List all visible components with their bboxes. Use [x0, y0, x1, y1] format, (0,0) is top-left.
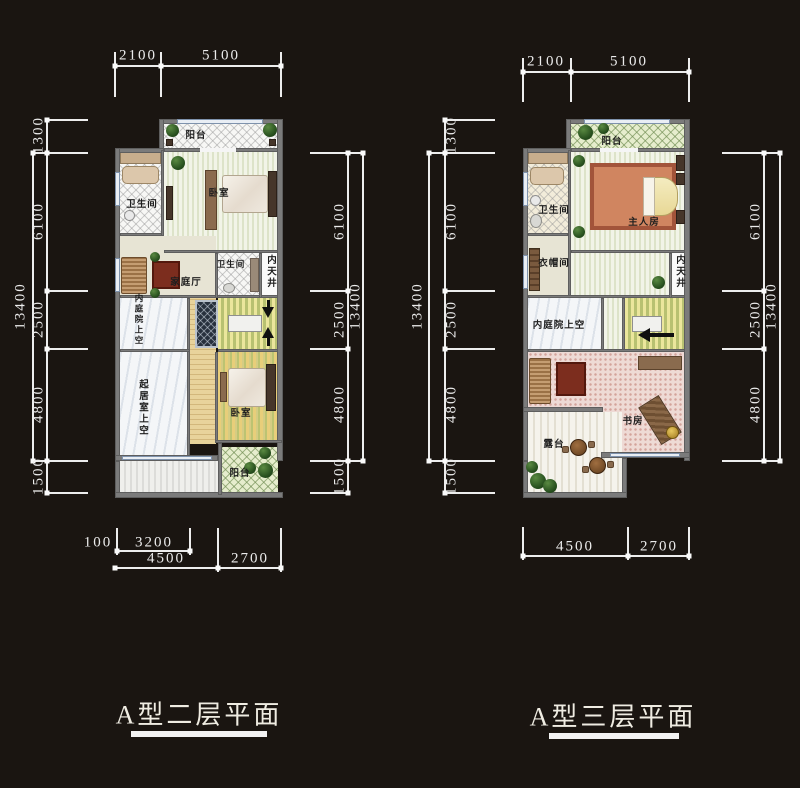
door-opening [600, 148, 638, 152]
plant-icon [652, 276, 665, 289]
stair-arrow-down-icon [262, 307, 274, 318]
dim-ext-line [688, 58, 690, 102]
dim-ext-line [46, 348, 88, 350]
room-label-courtyard-void: 内庭院上空 [533, 317, 586, 331]
dim-tick [427, 459, 432, 464]
dim-label: 2100 [527, 54, 565, 71]
dim-tick [361, 459, 366, 464]
window [177, 119, 263, 124]
bathtub [122, 166, 159, 184]
dim-ext-line [570, 58, 572, 102]
vanity [250, 258, 259, 292]
room-label-balcony-bottom: 阳台 [229, 465, 250, 479]
door-opening [200, 148, 236, 152]
dim-label: 4800 [748, 385, 765, 423]
dim-ext-line [310, 348, 349, 350]
bed [228, 368, 266, 407]
wall [215, 352, 218, 443]
wall [218, 349, 278, 352]
plant-icon [171, 156, 185, 170]
sofa [529, 358, 551, 404]
window [584, 119, 670, 124]
plant-icon [578, 125, 593, 140]
plant-icon [258, 463, 273, 478]
patio-chair [582, 466, 589, 473]
dim-tick [115, 549, 120, 554]
room-label-family-hall: 家庭厅 [170, 274, 202, 288]
wall [115, 492, 283, 498]
dim-tick [521, 554, 526, 559]
dim-label: 2500 [444, 300, 461, 338]
dim-label: 2500 [31, 300, 48, 338]
dim-tick [113, 566, 118, 571]
wall [259, 253, 262, 298]
room-label-cloakroom: 衣帽间 [538, 255, 570, 269]
dim-label: 5100 [202, 48, 240, 65]
room-label-study: 书房 [622, 413, 643, 427]
dim-label: 2500 [332, 300, 349, 338]
dim-label: 1500 [31, 457, 48, 495]
patio-table [589, 457, 606, 474]
toilet [223, 283, 235, 293]
wall [528, 295, 685, 298]
room-label-balcony-top: 阳台 [601, 133, 622, 147]
tv-cabinet [166, 186, 173, 220]
planter-box [269, 139, 276, 146]
dim-label: 6100 [444, 202, 461, 240]
planter-box [166, 139, 173, 146]
dim-label: 3200 [135, 535, 173, 552]
dim-label: 13400 [13, 282, 30, 330]
plant-icon [150, 288, 160, 298]
dim-tick [346, 151, 351, 156]
room-label-bedroom2: 卧室 [230, 405, 251, 419]
window [122, 456, 212, 460]
room-label-courtyard-void: 内庭院上空 [133, 294, 145, 347]
window [610, 453, 680, 457]
corridor [604, 298, 622, 350]
wall [218, 443, 222, 495]
window [115, 258, 120, 292]
dim-ext-line [444, 290, 495, 292]
bench [220, 372, 227, 402]
dim-tick [45, 347, 50, 352]
dim-tick [626, 554, 631, 559]
room-label-bath: 卫生间 [538, 202, 570, 216]
plant-icon [526, 461, 538, 473]
wall [120, 349, 190, 352]
dim-ext-line [114, 52, 116, 97]
room-courtyard-void [120, 298, 188, 350]
dim-tick [569, 70, 574, 75]
room-label-lightwell: 内天井 [672, 255, 686, 290]
dim-tick [778, 459, 783, 464]
corridor [571, 253, 669, 296]
dim-tick [113, 64, 118, 69]
patio-chair [588, 441, 595, 448]
plant-icon [573, 226, 585, 238]
dim-tick [188, 549, 193, 554]
room-living-void [120, 352, 188, 456]
dim-label: 4500 [147, 551, 185, 568]
dim-tick [216, 566, 221, 571]
room-label-bath1: 卫生间 [126, 196, 158, 210]
nightstand [676, 173, 685, 185]
shelf [638, 356, 682, 370]
window [523, 172, 528, 206]
dim-label: 2100 [119, 48, 157, 65]
dim-tick [279, 64, 284, 69]
dim-label: 13400 [410, 282, 427, 330]
plant-icon [573, 155, 585, 167]
dim-tick [279, 566, 284, 571]
wall [523, 407, 603, 412]
wall [277, 119, 283, 461]
dim-ext-line [46, 492, 88, 494]
wall [571, 250, 685, 253]
dim-label: 2700 [640, 539, 678, 556]
wall [120, 233, 164, 236]
dim-ext-line [46, 290, 88, 292]
dim-ext-line [722, 290, 765, 292]
dim-tick [687, 70, 692, 75]
dim-label: 2500 [748, 300, 765, 338]
window [115, 172, 120, 206]
caption-plan2: A型三层平面 [530, 697, 697, 734]
dim-ext-line [722, 152, 781, 154]
wall [187, 298, 190, 458]
bed-pillows [643, 177, 655, 216]
room-label-lightwell: 内天井 [263, 255, 277, 290]
dim-label: 1300 [31, 116, 48, 154]
patio-table [570, 439, 587, 456]
wall [523, 492, 627, 498]
room-label-living-void: 起居室上空 [135, 379, 149, 437]
dim-ext-line [310, 152, 364, 154]
dim-ext-line [280, 52, 282, 97]
dim-ext-line [428, 152, 495, 154]
dim-ext-line [722, 460, 781, 462]
dim-ext-line [46, 119, 88, 121]
dim-label: 6100 [748, 202, 765, 240]
dim-label: 1500 [444, 457, 461, 495]
dim-tick [443, 347, 448, 352]
dim-label: 13400 [348, 282, 365, 330]
dim-tick [443, 289, 448, 294]
wall [568, 150, 571, 298]
stair-arrow-up-icon [262, 327, 274, 338]
dim-ext-line [444, 348, 495, 350]
wardrobe [676, 155, 685, 171]
dim-tick [361, 151, 366, 156]
dim-label: 1500 [332, 457, 349, 495]
window [523, 255, 528, 289]
headboard [266, 364, 276, 411]
room-label-bath2: 卫生间 [217, 258, 246, 270]
dim-ext-line [310, 290, 349, 292]
dim-ext-line [722, 348, 765, 350]
dim-label: 4500 [556, 539, 594, 556]
dim-tick [159, 64, 164, 69]
lattice-screen [195, 300, 218, 348]
plant-icon [263, 123, 277, 137]
coffee-table [556, 362, 586, 396]
wall [115, 148, 164, 153]
stair-arrow-left-icon [650, 333, 674, 337]
wall [528, 233, 568, 236]
nightstand [676, 210, 685, 224]
plant-icon [166, 124, 179, 137]
floorplan-sheet: 2100 5100 1300 6100 2500 4800 1500 13400… [0, 0, 800, 788]
lamp [666, 426, 679, 439]
dim-label: 4800 [444, 385, 461, 423]
dim-tick [346, 347, 351, 352]
room-label-terrace: 露台 [543, 436, 564, 450]
dim-tick [521, 70, 526, 75]
dim-label: 5100 [610, 54, 648, 71]
stair-arrow-left-icon [638, 328, 650, 342]
wall [601, 298, 604, 352]
sofa [121, 257, 147, 294]
caption-underline [549, 733, 679, 739]
dim-ext-line [522, 58, 524, 102]
dim-ext-line [428, 460, 495, 462]
dim-label: 6100 [332, 202, 349, 240]
stair-landing [228, 315, 262, 332]
dim-line [428, 152, 430, 461]
dim-tick [762, 151, 767, 156]
dim-label: 4800 [332, 385, 349, 423]
dim-tick [687, 554, 692, 559]
plant-icon [259, 447, 271, 459]
dim-label: 6100 [31, 202, 48, 240]
wall [215, 440, 282, 443]
dim-label: 4800 [31, 385, 48, 423]
plant-icon [543, 479, 557, 493]
dresser [205, 170, 217, 230]
wall [161, 150, 164, 236]
dim-label: 1300 [444, 116, 461, 154]
dim-line [115, 65, 283, 67]
dim-tick [427, 151, 432, 156]
bathtub [530, 167, 564, 185]
dim-label: 100 [84, 535, 113, 552]
room-label-master: 主人房 [628, 214, 660, 228]
dim-tick [762, 459, 767, 464]
dim-tick [778, 151, 783, 156]
caption-underline [131, 731, 267, 737]
wall [523, 148, 571, 153]
patio-chair [607, 461, 614, 468]
dim-tick [762, 347, 767, 352]
plant-icon [150, 252, 160, 262]
dim-label: 13400 [764, 282, 781, 330]
room-label-balcony-top: 阳台 [185, 127, 206, 141]
dim-ext-line [160, 52, 162, 97]
room-balcony-top [162, 123, 279, 150]
wall [528, 349, 685, 352]
wall [622, 298, 625, 352]
headboard [268, 171, 277, 217]
porch [120, 461, 218, 493]
dim-label: 2700 [231, 551, 269, 568]
dim-tick [45, 289, 50, 294]
dim-line [523, 71, 690, 73]
toilet [530, 214, 542, 228]
stair-arrow-up-icon [267, 338, 270, 346]
sink [124, 210, 135, 221]
room-label-bedroom1: 卧室 [208, 185, 229, 199]
caption-plan1: A型二层平面 [116, 695, 283, 732]
